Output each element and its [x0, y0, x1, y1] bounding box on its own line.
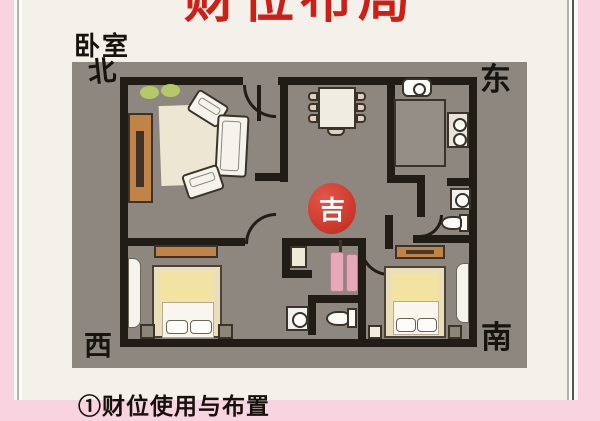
toilet-bowl-icon	[441, 216, 462, 230]
washing-machine-icon	[450, 188, 471, 210]
wall-left	[120, 77, 128, 347]
pillow-icon	[166, 320, 188, 334]
wall-living-stub	[255, 173, 288, 181]
tv-icon	[136, 131, 144, 187]
dining-chair-icon	[356, 114, 366, 123]
direction-south-label: 南	[481, 322, 512, 353]
dining-chair-icon	[308, 103, 318, 112]
tv-cabinet-icon	[128, 113, 153, 203]
direction-west-label: 西	[84, 332, 112, 360]
dining-chair-icon	[327, 128, 345, 136]
sofa-icon	[214, 114, 249, 178]
shelf-icon	[395, 245, 445, 259]
stove-icon	[447, 112, 469, 148]
direction-east-label: 东	[480, 64, 511, 95]
nightstand-icon	[368, 325, 382, 339]
caption-text: ①财位使用与布置	[78, 387, 270, 421]
wall-bath2-stub	[290, 270, 312, 278]
wall-bath2-inner-v	[308, 295, 316, 335]
wall-living-dining-divider	[280, 85, 288, 182]
kitchen-counter-icon	[394, 99, 446, 167]
entry-door-leaf	[257, 85, 261, 121]
shelf-icon	[154, 245, 218, 258]
auspicious-badge: 吉	[308, 183, 356, 234]
dining-chair-icon	[308, 114, 318, 123]
wall-bottom	[120, 339, 477, 347]
wall-bath2-top	[283, 238, 363, 246]
dining-chair-icon	[356, 103, 366, 112]
toilet-bowl-icon	[326, 311, 349, 326]
kitchen-sink-icon	[402, 78, 432, 97]
wardrobe-icon	[128, 258, 141, 328]
plant-icon	[140, 86, 159, 99]
pillow-icon	[190, 320, 212, 334]
wall-top-right	[278, 77, 477, 85]
bed-icon	[152, 265, 222, 338]
auspicious-badge-label: 吉	[319, 190, 345, 227]
floor-plan-poster: { "page": { "title": "财位布局", "room_label…	[0, 0, 600, 400]
wall-bath1-left	[417, 182, 425, 217]
wall-bath2-left	[282, 238, 290, 278]
nightstand-icon	[218, 324, 233, 339]
nightstand-icon	[140, 324, 155, 339]
bed-icon	[384, 266, 446, 338]
wall-right	[469, 77, 477, 347]
nightstand-icon	[448, 325, 462, 339]
page-title: 财位布局	[0, 0, 600, 26]
wall-hall-bed2	[385, 215, 393, 249]
washing-machine-icon	[286, 306, 309, 331]
direction-north-label: 北	[87, 57, 118, 88]
towel-icon	[330, 252, 344, 292]
bath-cabinet-icon	[290, 246, 307, 268]
wall-bath1-top-right	[447, 178, 477, 186]
wardrobe-icon	[456, 263, 469, 323]
wall-bath2-inner-h	[308, 295, 363, 303]
wall-top-left	[120, 77, 243, 85]
pillow-icon	[417, 318, 437, 332]
towel-icon	[346, 254, 358, 292]
dining-chair-icon	[356, 92, 366, 101]
dining-chair-icon	[308, 92, 318, 101]
dining-table-icon	[318, 87, 356, 129]
plant-icon	[161, 84, 180, 97]
pillow-icon	[396, 318, 416, 332]
